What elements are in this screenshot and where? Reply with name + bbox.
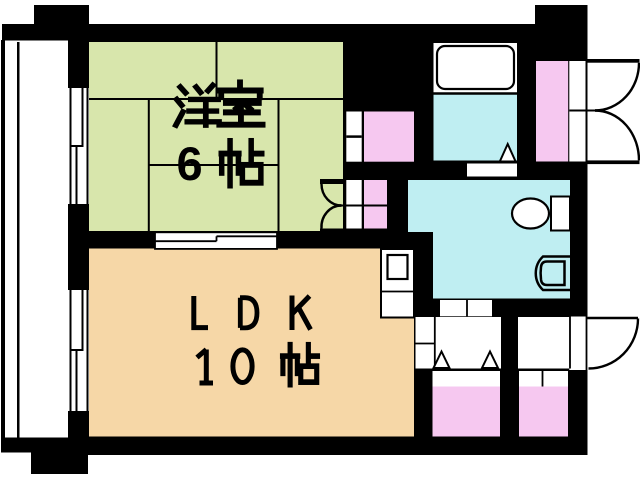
svg-text:6: 6 — [177, 137, 203, 190]
